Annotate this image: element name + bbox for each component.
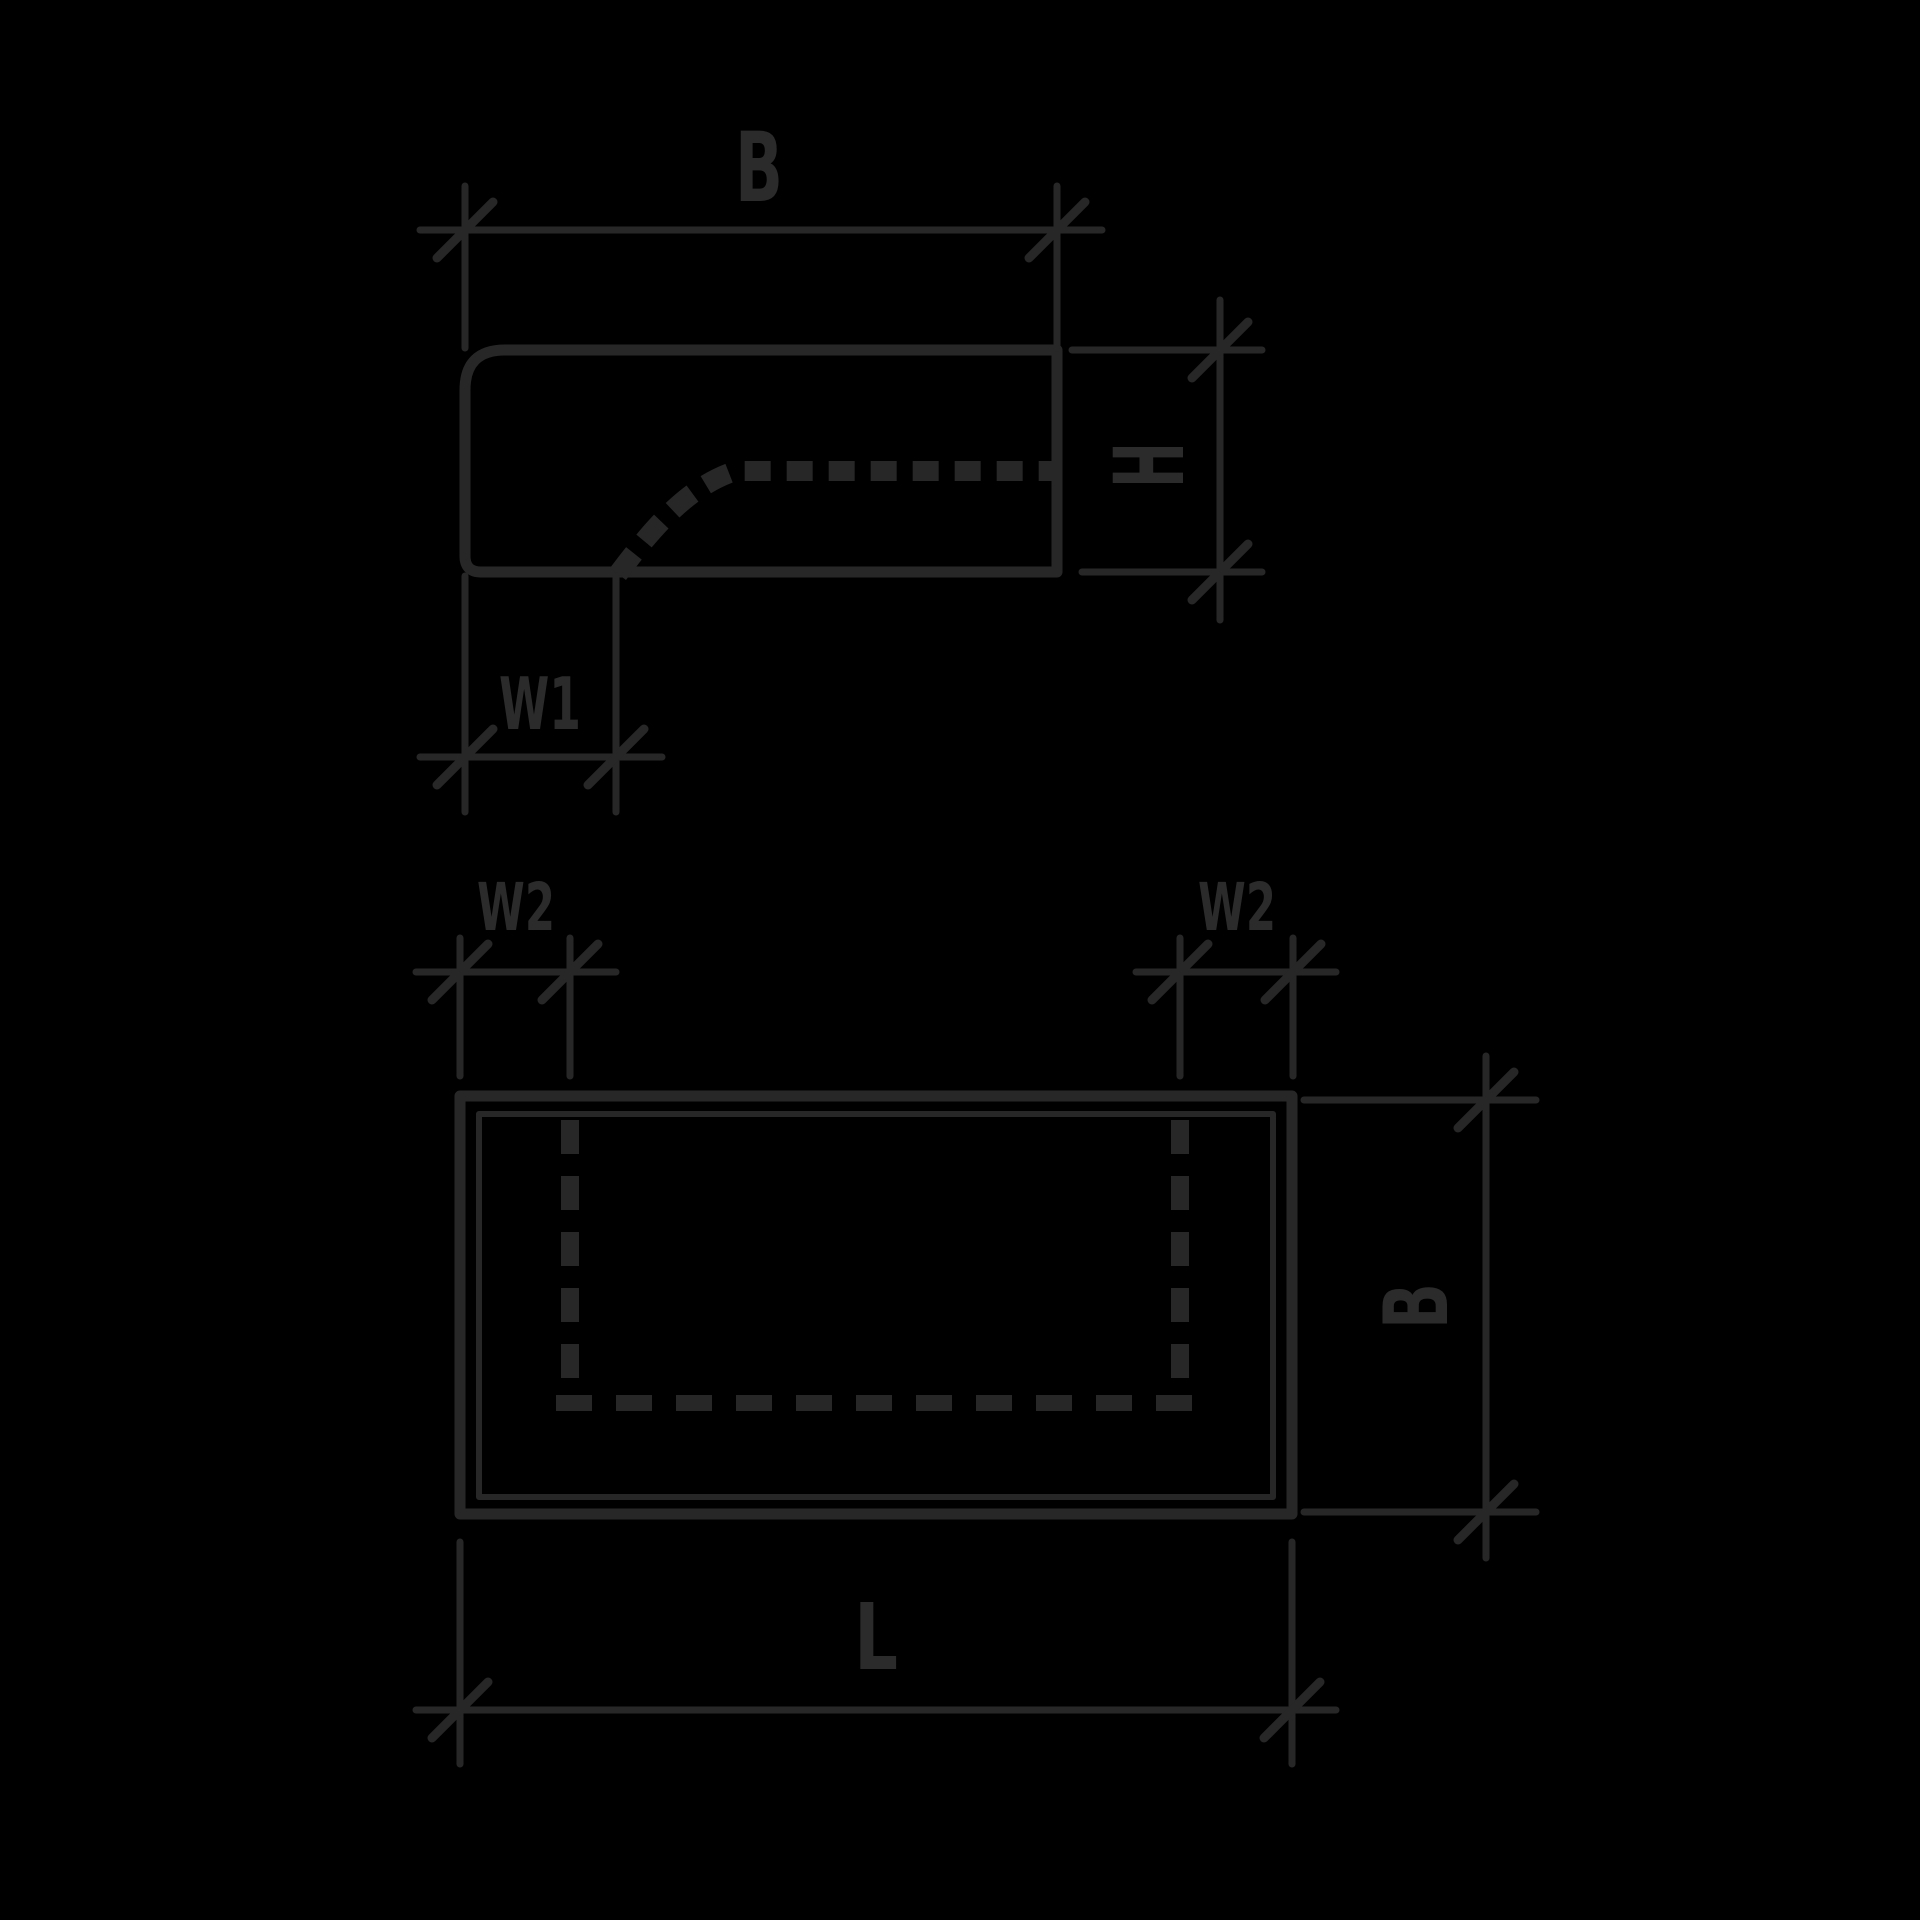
dim-label-b-top: B	[735, 112, 783, 224]
dim-inset-w2-left: W2	[416, 869, 616, 1076]
dim-label-w1: W1	[499, 662, 581, 746]
dim-label-w2-left: W2	[477, 869, 555, 946]
side-view-figure: B H W1	[420, 112, 1262, 812]
dimension-drawing: B H W1	[0, 0, 1920, 1920]
top-view-inner-rect	[479, 1114, 1273, 1497]
dim-label-w2-right: W2	[1198, 869, 1276, 946]
dim-label-l: L	[854, 1584, 898, 1691]
dim-height-h: H	[1072, 300, 1262, 620]
dim-notch-w1: W1	[420, 576, 662, 812]
dim-length-l: L	[416, 1542, 1336, 1764]
dim-inset-w2-right: W2	[1136, 869, 1336, 1076]
dim-label-h: H	[1094, 442, 1206, 488]
top-view-figure: W2 W2 B L	[416, 869, 1536, 1764]
dim-width-b-side: B	[1304, 1056, 1536, 1558]
hidden-edge-dashed-line	[618, 471, 1057, 574]
top-view-outer-rect	[460, 1096, 1292, 1514]
dim-width-b: B	[420, 112, 1102, 348]
drawing-canvas: B H W1	[0, 0, 1920, 1920]
dim-label-b-side: B	[1365, 1283, 1468, 1329]
